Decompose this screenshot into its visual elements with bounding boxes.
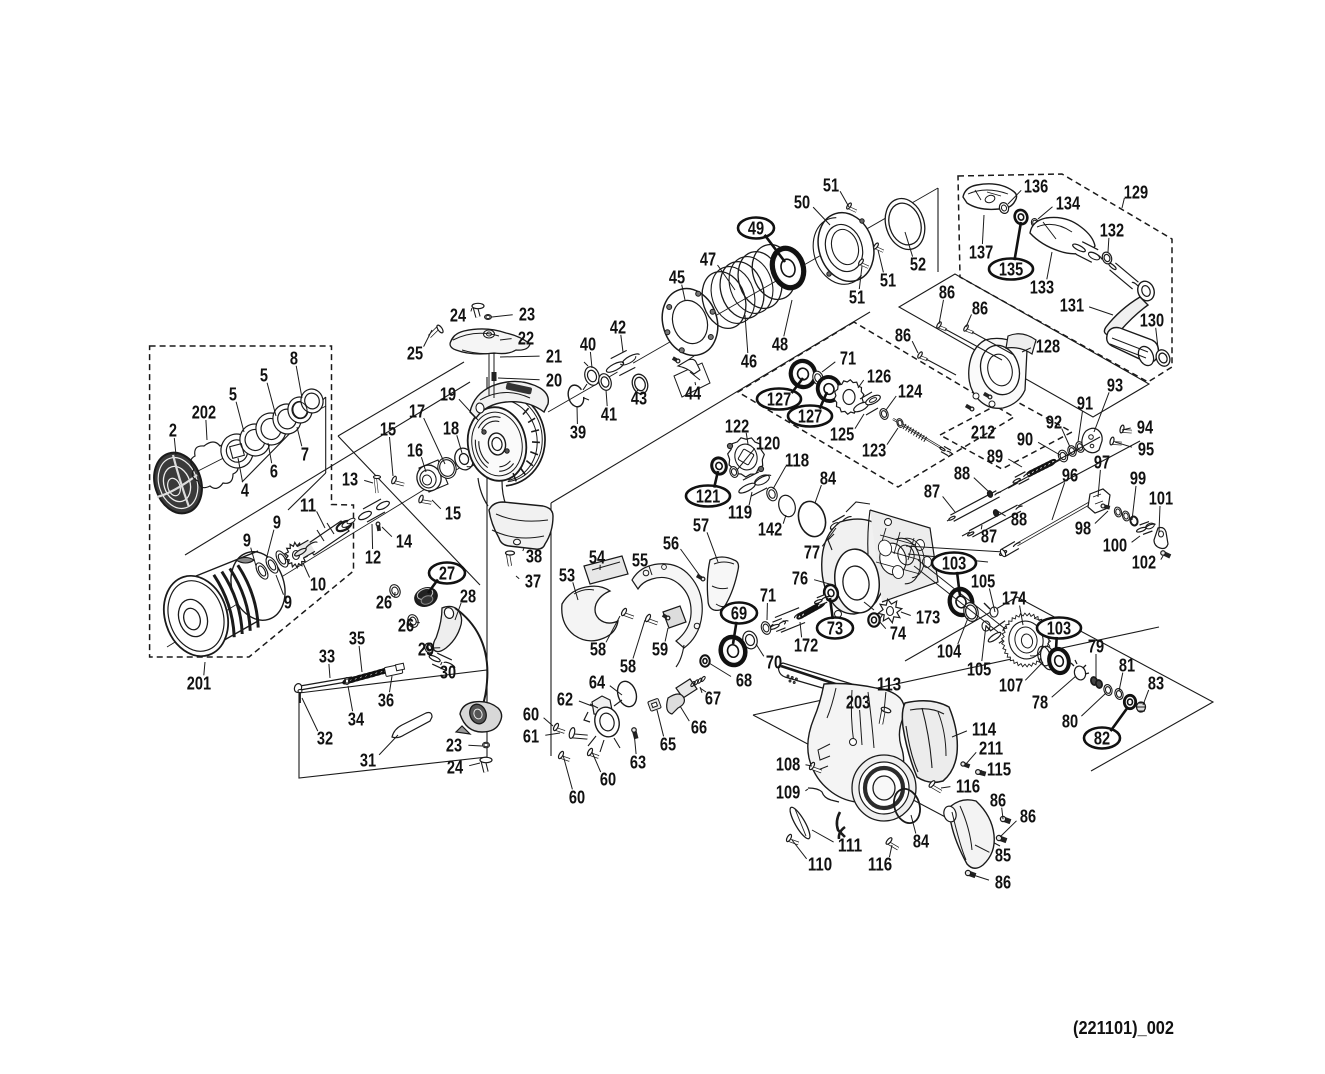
svg-text:20: 20 <box>546 370 562 391</box>
svg-text:43: 43 <box>631 388 647 409</box>
svg-text:174: 174 <box>1002 588 1027 609</box>
svg-text:42: 42 <box>610 317 626 338</box>
svg-text:203: 203 <box>846 692 870 713</box>
svg-text:52: 52 <box>910 254 926 275</box>
svg-text:(221101)_002: (221101)_002 <box>1073 1017 1174 1038</box>
svg-text:127: 127 <box>767 389 791 410</box>
svg-text:59: 59 <box>652 639 668 660</box>
svg-text:118: 118 <box>785 450 809 471</box>
svg-text:86: 86 <box>1020 806 1036 827</box>
svg-text:28: 28 <box>460 586 476 607</box>
svg-text:96: 96 <box>1062 465 1078 486</box>
svg-text:19: 19 <box>440 384 456 405</box>
svg-text:24: 24 <box>447 757 464 778</box>
svg-text:17: 17 <box>409 401 425 422</box>
svg-text:134: 134 <box>1056 193 1081 214</box>
svg-text:56: 56 <box>663 533 679 554</box>
svg-text:101: 101 <box>1149 488 1173 509</box>
svg-text:84: 84 <box>820 468 837 489</box>
svg-text:120: 120 <box>756 433 780 454</box>
svg-text:40: 40 <box>580 334 596 355</box>
svg-text:95: 95 <box>1138 439 1154 460</box>
svg-text:82: 82 <box>1094 728 1110 749</box>
svg-text:103: 103 <box>942 553 966 574</box>
svg-text:30: 30 <box>440 662 456 683</box>
svg-text:5: 5 <box>260 365 268 386</box>
svg-text:53: 53 <box>559 565 575 586</box>
svg-text:81: 81 <box>1119 655 1135 676</box>
svg-text:54: 54 <box>589 547 606 568</box>
svg-text:51: 51 <box>880 270 896 291</box>
svg-text:29: 29 <box>418 639 434 660</box>
svg-text:41: 41 <box>601 404 617 425</box>
svg-text:137: 137 <box>969 242 993 263</box>
svg-text:79: 79 <box>1088 636 1104 657</box>
svg-text:94: 94 <box>1137 417 1154 438</box>
svg-text:212: 212 <box>971 422 995 443</box>
svg-text:202: 202 <box>192 402 216 423</box>
svg-text:16: 16 <box>407 440 423 461</box>
svg-text:97: 97 <box>1094 452 1110 473</box>
svg-text:47: 47 <box>700 249 716 270</box>
svg-text:64: 64 <box>589 672 606 693</box>
svg-text:89: 89 <box>987 446 1003 467</box>
svg-text:99: 99 <box>1130 468 1146 489</box>
svg-text:21: 21 <box>546 346 562 367</box>
svg-text:65: 65 <box>660 734 676 755</box>
svg-text:132: 132 <box>1100 220 1124 241</box>
svg-text:111: 111 <box>838 835 862 856</box>
svg-text:38: 38 <box>526 546 542 567</box>
svg-text:4: 4 <box>241 480 250 501</box>
svg-text:48: 48 <box>772 334 788 355</box>
svg-text:37: 37 <box>525 571 541 592</box>
svg-text:60: 60 <box>523 704 539 725</box>
svg-text:90: 90 <box>1017 429 1033 450</box>
svg-text:60: 60 <box>569 787 585 808</box>
svg-text:26: 26 <box>376 592 392 613</box>
svg-text:23: 23 <box>519 304 535 325</box>
svg-text:105: 105 <box>971 571 995 592</box>
svg-text:62: 62 <box>557 689 573 710</box>
svg-text:104: 104 <box>937 641 962 662</box>
svg-text:69: 69 <box>731 603 747 624</box>
svg-text:36: 36 <box>378 690 394 711</box>
svg-text:125: 125 <box>830 424 854 445</box>
svg-text:46: 46 <box>741 351 757 372</box>
svg-text:9: 9 <box>273 512 281 533</box>
svg-text:71: 71 <box>840 348 856 369</box>
svg-text:39: 39 <box>570 422 586 443</box>
svg-text:10: 10 <box>310 574 326 595</box>
svg-text:74: 74 <box>890 623 907 644</box>
svg-text:58: 58 <box>620 656 636 677</box>
svg-text:116: 116 <box>956 776 980 797</box>
svg-text:31: 31 <box>360 750 376 771</box>
svg-text:131: 131 <box>1060 295 1084 316</box>
svg-text:88: 88 <box>1011 509 1027 530</box>
svg-text:121: 121 <box>696 486 720 507</box>
svg-text:67: 67 <box>705 688 721 709</box>
svg-text:135: 135 <box>999 259 1023 280</box>
svg-text:136: 136 <box>1024 176 1048 197</box>
svg-text:58: 58 <box>590 639 606 660</box>
svg-text:23: 23 <box>446 735 462 756</box>
svg-text:86: 86 <box>895 325 911 346</box>
svg-text:50: 50 <box>794 192 810 213</box>
svg-text:86: 86 <box>990 790 1006 811</box>
svg-text:33: 33 <box>319 646 335 667</box>
svg-text:86: 86 <box>995 872 1011 893</box>
svg-text:114: 114 <box>972 719 997 740</box>
svg-text:73: 73 <box>827 618 843 639</box>
svg-text:107: 107 <box>999 675 1023 696</box>
svg-text:105: 105 <box>967 659 991 680</box>
svg-text:24: 24 <box>450 305 467 326</box>
svg-text:80: 80 <box>1062 711 1078 732</box>
svg-text:124: 124 <box>898 381 923 402</box>
svg-text:15: 15 <box>380 419 396 440</box>
svg-text:45: 45 <box>669 267 685 288</box>
svg-text:60: 60 <box>600 769 616 790</box>
svg-text:18: 18 <box>443 418 459 439</box>
svg-text:27: 27 <box>439 563 455 584</box>
svg-text:87: 87 <box>981 526 997 547</box>
svg-text:5: 5 <box>229 384 237 405</box>
svg-text:201: 201 <box>187 673 211 694</box>
svg-text:109: 109 <box>776 782 800 803</box>
svg-text:85: 85 <box>995 845 1011 866</box>
svg-text:66: 66 <box>691 717 707 738</box>
svg-text:173: 173 <box>916 607 940 628</box>
svg-text:9: 9 <box>284 592 292 613</box>
svg-text:57: 57 <box>693 515 709 536</box>
svg-text:44: 44 <box>685 383 702 404</box>
svg-text:142: 142 <box>758 519 782 540</box>
svg-text:22: 22 <box>518 328 534 349</box>
svg-text:115: 115 <box>987 759 1011 780</box>
svg-text:2: 2 <box>169 420 177 441</box>
svg-text:127: 127 <box>798 406 822 427</box>
svg-text:51: 51 <box>823 175 839 196</box>
svg-text:9: 9 <box>243 530 251 551</box>
svg-text:76: 76 <box>792 568 808 589</box>
svg-text:129: 129 <box>1124 182 1148 203</box>
svg-text:8: 8 <box>290 348 298 369</box>
svg-text:100: 100 <box>1103 535 1127 556</box>
svg-text:102: 102 <box>1132 552 1156 573</box>
svg-text:133: 133 <box>1030 277 1054 298</box>
svg-text:68: 68 <box>736 670 752 691</box>
svg-text:123: 123 <box>862 440 886 461</box>
svg-text:172: 172 <box>794 635 818 656</box>
svg-text:26: 26 <box>398 615 414 636</box>
svg-text:25: 25 <box>407 343 423 364</box>
svg-text:12: 12 <box>365 547 381 568</box>
svg-text:110: 110 <box>808 854 832 875</box>
svg-text:32: 32 <box>317 728 333 749</box>
svg-text:77: 77 <box>804 542 820 563</box>
svg-text:11: 11 <box>300 495 316 516</box>
svg-text:86: 86 <box>939 282 955 303</box>
svg-text:113: 113 <box>877 674 901 695</box>
svg-text:119: 119 <box>728 502 752 523</box>
svg-text:7: 7 <box>301 444 309 465</box>
svg-text:71: 71 <box>760 585 776 606</box>
svg-text:116: 116 <box>868 854 892 875</box>
svg-text:84: 84 <box>913 831 930 852</box>
svg-text:108: 108 <box>776 754 800 775</box>
svg-text:6: 6 <box>270 461 278 482</box>
svg-text:86: 86 <box>972 298 988 319</box>
svg-text:49: 49 <box>748 218 764 239</box>
svg-text:34: 34 <box>348 709 365 730</box>
svg-text:87: 87 <box>924 481 940 502</box>
svg-text:78: 78 <box>1032 692 1048 713</box>
svg-text:211: 211 <box>979 738 1003 759</box>
svg-text:92: 92 <box>1046 412 1062 433</box>
svg-text:128: 128 <box>1036 336 1060 357</box>
svg-text:91: 91 <box>1077 393 1093 414</box>
svg-text:126: 126 <box>867 366 891 387</box>
svg-text:130: 130 <box>1140 310 1164 331</box>
svg-text:35: 35 <box>349 628 365 649</box>
svg-text:70: 70 <box>766 652 782 673</box>
svg-text:88: 88 <box>954 463 970 484</box>
svg-text:83: 83 <box>1148 673 1164 694</box>
svg-text:93: 93 <box>1107 375 1123 396</box>
svg-text:15: 15 <box>445 503 461 524</box>
svg-text:103: 103 <box>1047 618 1071 639</box>
svg-text:122: 122 <box>725 416 749 437</box>
svg-text:55: 55 <box>632 550 648 571</box>
svg-text:98: 98 <box>1075 518 1091 539</box>
svg-text:51: 51 <box>849 287 865 308</box>
svg-text:14: 14 <box>396 531 413 552</box>
svg-text:13: 13 <box>342 469 358 490</box>
svg-text:63: 63 <box>630 752 646 773</box>
svg-text:61: 61 <box>523 726 539 747</box>
